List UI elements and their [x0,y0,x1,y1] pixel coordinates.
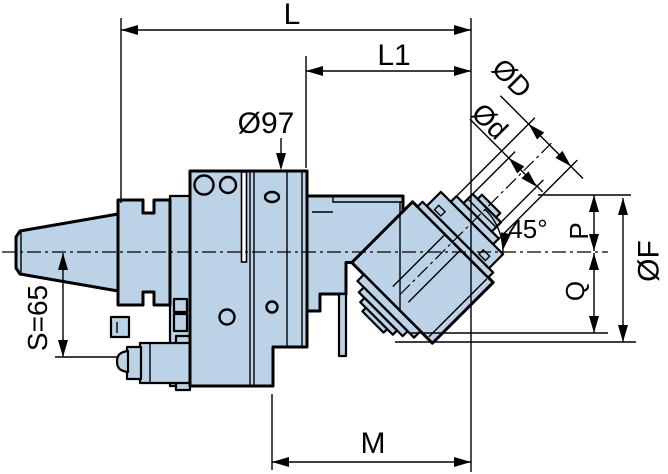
main-body-block [190,171,307,386]
arrowhead-icon [589,195,599,212]
arrowhead-icon [276,153,286,170]
dim-label-diaF: ØF [633,240,666,282]
mounting-rib [339,294,346,356]
arrowhead-icon [58,340,68,357]
cap-nut-dome [117,351,128,372]
arrowhead-icon [589,316,599,333]
technical-drawing-canvas: L L1 Ø97 ØD Ød 45° P Q ØF S=65 M [0,0,668,474]
dimension-L1 [306,56,471,168]
dim-label-P: P [564,222,594,239]
dimension-dia97 [276,138,286,170]
arrowhead-icon [618,325,628,342]
arrowhead-icon [454,66,471,76]
dim-label-M: M [361,427,386,460]
dimension-diaF [618,198,628,342]
arrowhead-icon [589,253,599,270]
clamp-screw-lower [174,314,187,331]
dimension-Q [589,253,599,333]
dim-label-S: S=65 [22,285,53,351]
dim-label-dia97: Ø97 [238,107,295,140]
dim-label-L1: L1 [377,39,410,72]
dim-label-diaD: ØD [486,52,538,104]
dim-label-diad: Ød [466,97,514,145]
arrowhead-icon [454,25,471,35]
dim-label-L: L [284,0,301,31]
technical-drawing-page: L L1 Ø97 ØD Ød 45° P Q ØF S=65 M [0,0,668,474]
arrowhead-icon [121,25,138,35]
arrowhead-icon [454,457,471,467]
dim-label-Q: Q [560,281,590,301]
cap-nut-body [140,343,190,383]
dim-label-45: 45° [508,214,547,244]
clamp-screw-upper [174,299,187,312]
arrowhead-icon [618,198,628,215]
body-slit [242,172,247,262]
dimension-S [58,253,68,357]
arrowhead-icon [306,66,323,76]
arrowhead-icon [272,457,289,467]
drive-key-boss [111,317,129,337]
